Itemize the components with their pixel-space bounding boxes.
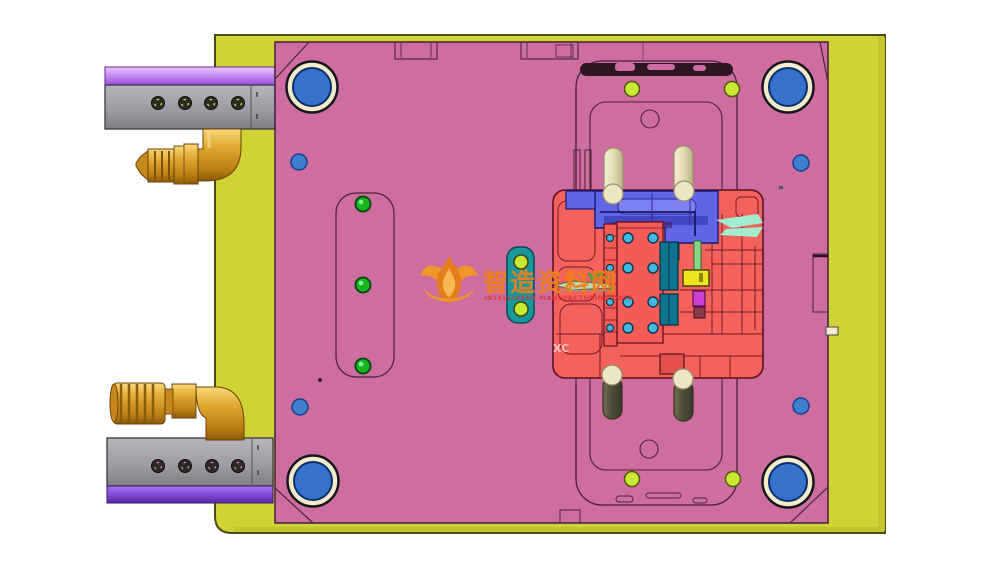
return-pin-head — [602, 365, 622, 385]
coupler-tip — [136, 151, 148, 180]
part-port — [615, 63, 635, 71]
cad-viewport: YC XC 智造资料网 INTELLIGENT MANUFACTURING DA… — [0, 0, 992, 564]
slider-arm — [566, 191, 595, 209]
part-port — [693, 65, 706, 71]
small-tick — [779, 186, 783, 189]
ball-plunger[interactable] — [356, 359, 371, 374]
lower-block — [694, 307, 705, 318]
watermark-title: 智造资料网 — [483, 268, 618, 297]
lime-screw-hole[interactable] — [514, 255, 528, 269]
return-pin-head — [673, 369, 693, 389]
fitting-nut[interactable] — [184, 144, 198, 184]
guide-bushing-top-left[interactable] — [287, 62, 338, 113]
screw[interactable] — [152, 97, 165, 110]
yellow-block[interactable] — [683, 270, 709, 286]
screw-hole[interactable] — [793, 398, 809, 414]
screw[interactable] — [179, 97, 192, 110]
lime-screw-hole[interactable] — [625, 82, 640, 97]
fitting-collar — [174, 146, 184, 184]
screw-hole[interactable] — [793, 155, 809, 171]
coolant-fitting-bottom[interactable] — [110, 383, 244, 440]
wear-plates[interactable] — [660, 242, 678, 325]
return-pin-head — [603, 184, 623, 204]
screw[interactable] — [232, 460, 245, 473]
screw[interactable] — [232, 97, 245, 110]
lime-screw-hole[interactable] — [514, 302, 528, 316]
part-port — [647, 64, 675, 70]
guide-bushing-bottom-right[interactable] — [763, 457, 814, 508]
label-xc: XC — [553, 342, 569, 355]
watermark-subtitle: INTELLIGENT MANUFACTURING DATA — [484, 294, 633, 302]
screw[interactable] — [205, 97, 218, 110]
rail-purple-strip — [107, 486, 273, 503]
guide-bushing-bottom-left[interactable] — [288, 456, 339, 507]
return-pin-head — [674, 181, 694, 201]
barb-end-cap — [110, 384, 118, 422]
support-rail-bottom[interactable] — [107, 438, 273, 503]
screw[interactable] — [206, 460, 219, 473]
screw[interactable] — [152, 460, 165, 473]
screw[interactable] — [179, 460, 192, 473]
screw-hole[interactable] — [292, 399, 308, 415]
support-rail-top[interactable] — [105, 67, 275, 129]
ball-plunger[interactable] — [356, 197, 371, 212]
ball-highlight — [359, 200, 364, 205]
magenta-block[interactable] — [693, 291, 705, 306]
fitting-nut[interactable] — [172, 384, 196, 418]
base-plate-edge-shade — [878, 37, 885, 531]
ball-highlight — [359, 362, 364, 367]
guide-bushing-top-right[interactable] — [763, 62, 814, 113]
side-lock-tab[interactable] — [826, 327, 838, 335]
ball-plunger[interactable] — [356, 278, 371, 293]
pin-hole-dot — [318, 378, 322, 382]
base-plate-bottom-shade — [234, 527, 883, 532]
mold-assembly-drawing: YC XC 智造资料网 INTELLIGENT MANUFACTURING DA… — [0, 0, 992, 564]
lime-screw-hole[interactable] — [625, 472, 640, 487]
coolant-fitting-top[interactable] — [136, 129, 241, 184]
guide-strip[interactable] — [694, 241, 701, 273]
ball-highlight — [359, 281, 364, 286]
lime-screw-hole[interactable] — [726, 472, 741, 487]
rail-purple-strip — [105, 67, 275, 85]
block-slot — [699, 273, 703, 282]
lime-screw-hole[interactable] — [725, 82, 740, 97]
screw-hole[interactable] — [291, 154, 307, 170]
